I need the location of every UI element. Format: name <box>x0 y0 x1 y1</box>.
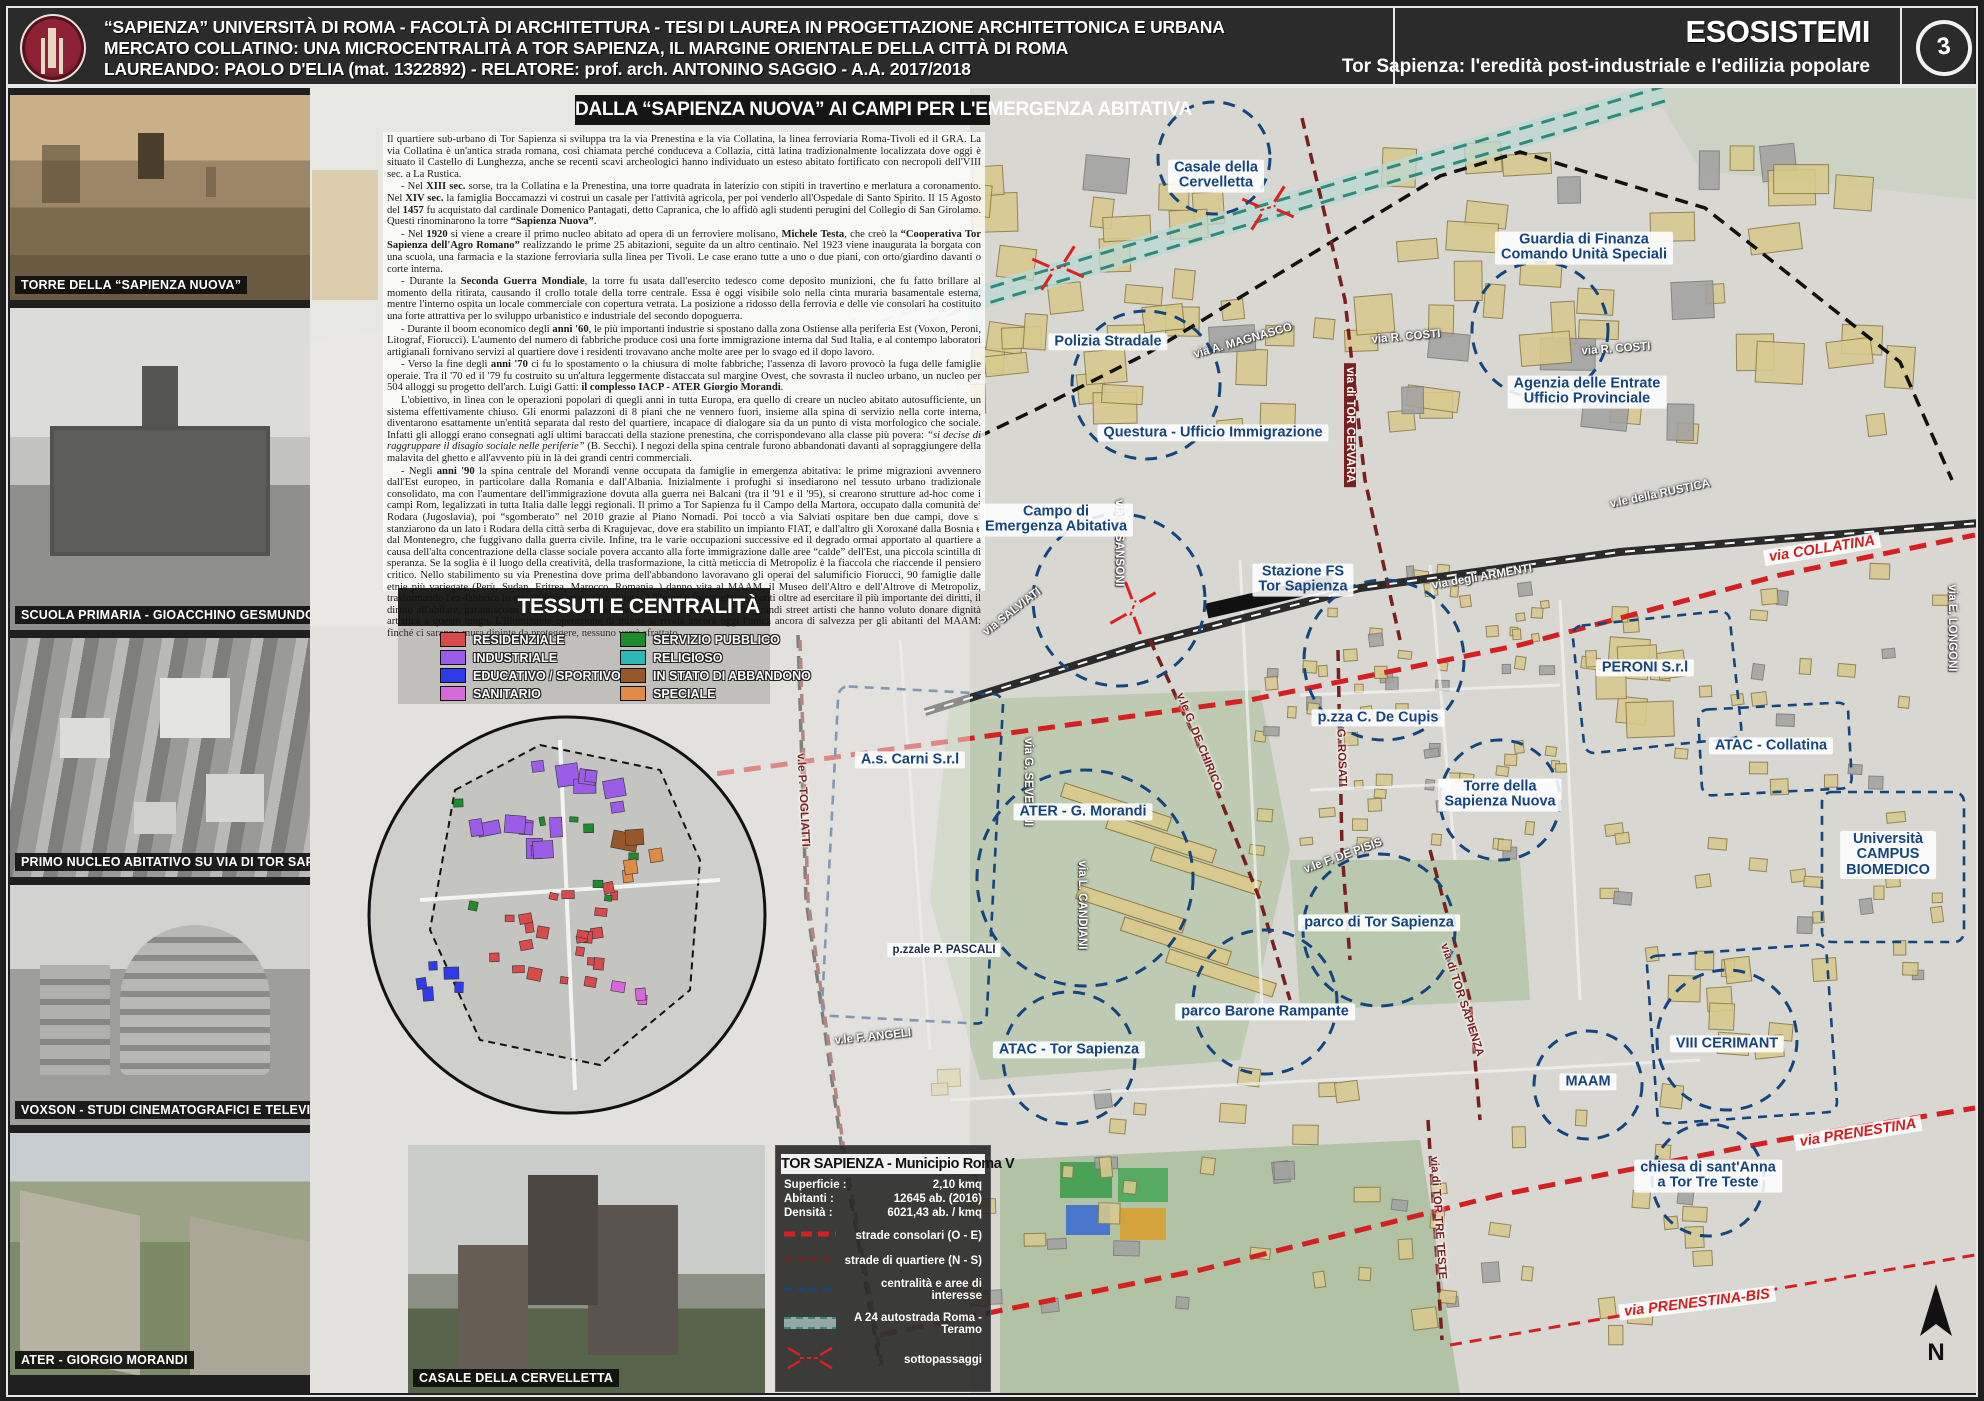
header: “SAPIENZA” UNIVERSITÀ DI ROMA - FACOLTÀ … <box>8 8 1974 84</box>
sheet-number-badge: 3 <box>1912 16 1975 79</box>
map-poi-label: Casale della Cervelletta <box>1168 160 1264 193</box>
map-poi-label: parco di Tor Sapienza <box>1298 914 1460 931</box>
legend-swatch <box>440 650 466 665</box>
legend-item: RESIDENZIALE <box>440 632 565 647</box>
thesis-board: “SAPIENZA” UNIVERSITÀ DI ROMA - FACOLTÀ … <box>0 0 1984 1401</box>
map-poi-label: ATER - G. Morandi <box>1013 803 1152 820</box>
legend-item: SANITARIO <box>440 686 541 701</box>
map-poi-label: p.zza C. De Cupis <box>1312 709 1445 726</box>
legend-swatch <box>620 668 646 683</box>
map-poi-label: Polizia Stradale <box>1048 333 1167 350</box>
road-legend-row: sottopassaggi <box>776 1344 990 1375</box>
map-poi-label: Guardia di Finanza Comando Unità Special… <box>1495 232 1673 265</box>
article-paragraph: L'obiettivo, in linea con le operazioni … <box>387 395 981 465</box>
stat-row: Densità :6021,43 ab. / kmq <box>776 1206 990 1220</box>
map-poi-label: A.s. Carni S.r.l <box>855 751 965 768</box>
legend-label: INDUSTRIALE <box>473 651 557 665</box>
info-map-legend: strade consolari (O - E)strade di quarti… <box>776 1226 990 1375</box>
stat-row: Abitanti :12645 ab. (2016) <box>776 1192 990 1206</box>
legend-item: IN STATO DI ABBANDONO <box>620 668 811 683</box>
map-poi-label: Stazione FS Tor Sapienza <box>1252 564 1353 597</box>
series-title: ESOSISTEMI <box>1686 14 1870 50</box>
map-poi-label: Questura - Ufficio Immigrazione <box>1097 424 1328 441</box>
map-poi-label: Agenzia delle Entrate Ufficio Provincial… <box>1508 376 1667 409</box>
legend-label: IN STATO DI ABBANDONO <box>653 669 811 683</box>
legend-swatch <box>440 632 466 647</box>
legend-label: RESIDENZIALE <box>473 633 565 647</box>
article-title: DALLA “SAPIENZA NUOVA” AI CAMPI PER L'EM… <box>575 95 990 125</box>
district-info-box: TOR SAPIENZA - Municipio Roma V Superfic… <box>775 1145 991 1392</box>
map-poi-label: VIII CERIMANT <box>1670 1035 1784 1052</box>
stat-row: Superficie :2,10 kmq <box>776 1178 990 1192</box>
stat-value: 12645 ab. (2016) <box>894 1193 982 1205</box>
tessuti-legend-title: TESSUTI E CENTRALITÀ <box>398 588 770 626</box>
article-paragraph: Il quartiere sub-urbano di Tor Sapienza … <box>387 134 981 180</box>
road-legend-label: A 24 autostrada Roma - Teramo <box>836 1312 982 1336</box>
article-paragraph: - Nel 1920 si viene a creare il primo nu… <box>387 229 981 275</box>
road-legend-label: centralità e aree di interesse <box>836 1278 982 1302</box>
legend-swatch <box>620 632 646 647</box>
legend-item: SERVIZIO PUBBLICO <box>620 632 780 647</box>
legend-item: INDUSTRIALE <box>440 650 557 665</box>
a24-symbol-icon <box>784 1315 836 1334</box>
map-poi-label: chiesa di sant'Anna a Tor Tre Teste <box>1634 1160 1782 1193</box>
consolari-symbol-icon <box>784 1228 836 1243</box>
legend-label: SPECIALE <box>653 687 716 701</box>
road-legend-row: centralità e aree di interesse <box>776 1276 990 1304</box>
header-line2: MERCATO COLLATINO: UNA MICROCENTRALITÀ A… <box>104 38 1068 59</box>
legend-item: RELIGIOSO <box>620 650 722 665</box>
legend-label: SERVIZIO PUBBLICO <box>653 633 780 647</box>
stat-value: 2,10 kmq <box>933 1179 982 1191</box>
map-poi-label: Campo di Emergenza Abitativa <box>979 504 1133 537</box>
legend-label: EDUCATIVO / SPORTIVO <box>473 669 621 683</box>
road-legend-row: strade consolari (O - E) <box>776 1226 990 1245</box>
tessuti-legend-items: RESIDENZIALEINDUSTRIALEEDUCATIVO / SPORT… <box>398 626 770 704</box>
article-paragraph: - Durante il boom economico degli anni '… <box>387 324 981 359</box>
article-paragraph: - Verso la fine degli anni '70 ci fu lo … <box>387 359 981 394</box>
legend-swatch <box>620 650 646 665</box>
header-line1: “SAPIENZA” UNIVERSITÀ DI ROMA - FACOLTÀ … <box>104 17 1225 38</box>
info-box-title: TOR SAPIENZA - Municipio Roma V <box>781 1154 985 1174</box>
road-legend-label: sottopassaggi <box>836 1354 982 1366</box>
map-poi-label: PERONI S.r.l <box>1596 659 1694 676</box>
road-legend-row: A 24 autostrada Roma - Teramo <box>776 1310 990 1338</box>
article-body: Il quartiere sub-urbano di Tor Sapienza … <box>383 132 985 591</box>
stat-label: Abitanti : <box>784 1193 834 1205</box>
map-poi-label: ATAC - Collatina <box>1709 737 1833 754</box>
legend-item: EDUCATIVO / SPORTIVO <box>440 668 621 683</box>
photo-caption: CASALE DELLA CERVELLETTA <box>413 1369 619 1387</box>
stat-label: Superficie : <box>784 1179 847 1191</box>
stat-value: 6021,43 ab. / kmq <box>887 1207 982 1219</box>
legend-swatch <box>620 686 646 701</box>
legend-label: RELIGIOSO <box>653 651 722 665</box>
map-street-label: via E. LONGONI <box>1946 585 1958 672</box>
sottopassaggi-symbol-icon <box>784 1346 836 1373</box>
article-paragraph: - Nel XIII sec. sorse, tra la Collatina … <box>387 181 981 227</box>
sapienza-crest-logo <box>20 14 86 82</box>
road-legend-label: strade consolari (O - E) <box>836 1230 982 1242</box>
map-street-label: p.zzale P. PASCALI <box>887 943 1000 957</box>
map-poi-label: MAAM <box>1559 1073 1616 1090</box>
series-subtitle: Tor Sapienza: l'eredità post-industriale… <box>1342 56 1870 78</box>
legend-item: SPECIALE <box>620 686 716 701</box>
info-stats: Superficie :2,10 kmqAbitanti :12645 ab. … <box>776 1178 990 1220</box>
north-arrow-icon: N <box>1908 1280 1964 1366</box>
photo-casale-cervelletta: CASALE DELLA CERVELLETTA <box>408 1145 765 1393</box>
stat-label: Densità : <box>784 1207 833 1219</box>
castle-silhouette <box>528 1175 598 1305</box>
road-legend-row: strade di quartiere (N - S) <box>776 1251 990 1270</box>
legend-label: SANITARIO <box>473 687 541 701</box>
map-poi-label: Università CAMPUS BIOMEDICO <box>1840 831 1936 879</box>
map-street-label: via L. CANDIANI <box>1076 861 1088 950</box>
header-divider-2 <box>1900 8 1902 84</box>
header-line3: LAUREANDO: PAOLO D'ELIA (mat. 1322892) -… <box>104 59 971 80</box>
article-paragraph: - Durante la Seconda Guerra Mondiale, la… <box>387 276 981 322</box>
legend-swatch <box>440 668 466 683</box>
road-legend-label: strade di quartiere (N - S) <box>836 1255 982 1267</box>
centralita-symbol-icon <box>784 1283 836 1298</box>
quartiere-symbol-icon <box>784 1253 836 1268</box>
map-poi-label: parco Barone Rampante <box>1175 1003 1355 1020</box>
compass-n: N <box>1927 1339 1944 1366</box>
legend-swatch <box>440 686 466 701</box>
map-street-label: via di TOR CERVARA <box>1344 363 1356 487</box>
map-poi-label: Torre della Sapienza Nuova <box>1438 779 1561 812</box>
map-poi-label: ATAC - Tor Sapienza <box>993 1041 1145 1058</box>
